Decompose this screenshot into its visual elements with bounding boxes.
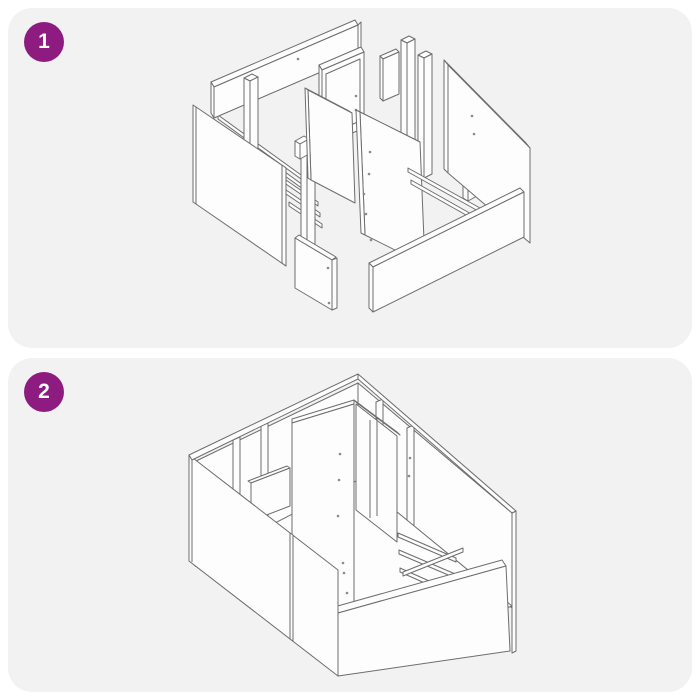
assembly-instructions-page: 1 [0,0,700,700]
left-side-wall [193,105,286,266]
step-1-exploded-view-diagram [8,8,692,348]
step-2-assembled-view-diagram [8,358,692,692]
corner-batten-left [244,74,258,152]
step-2-card: 2 [8,358,692,692]
small-door-panel [295,235,337,310]
small-back-panel [380,49,399,101]
step-1-card: 1 [8,8,692,348]
right-corner-post [512,511,516,653]
